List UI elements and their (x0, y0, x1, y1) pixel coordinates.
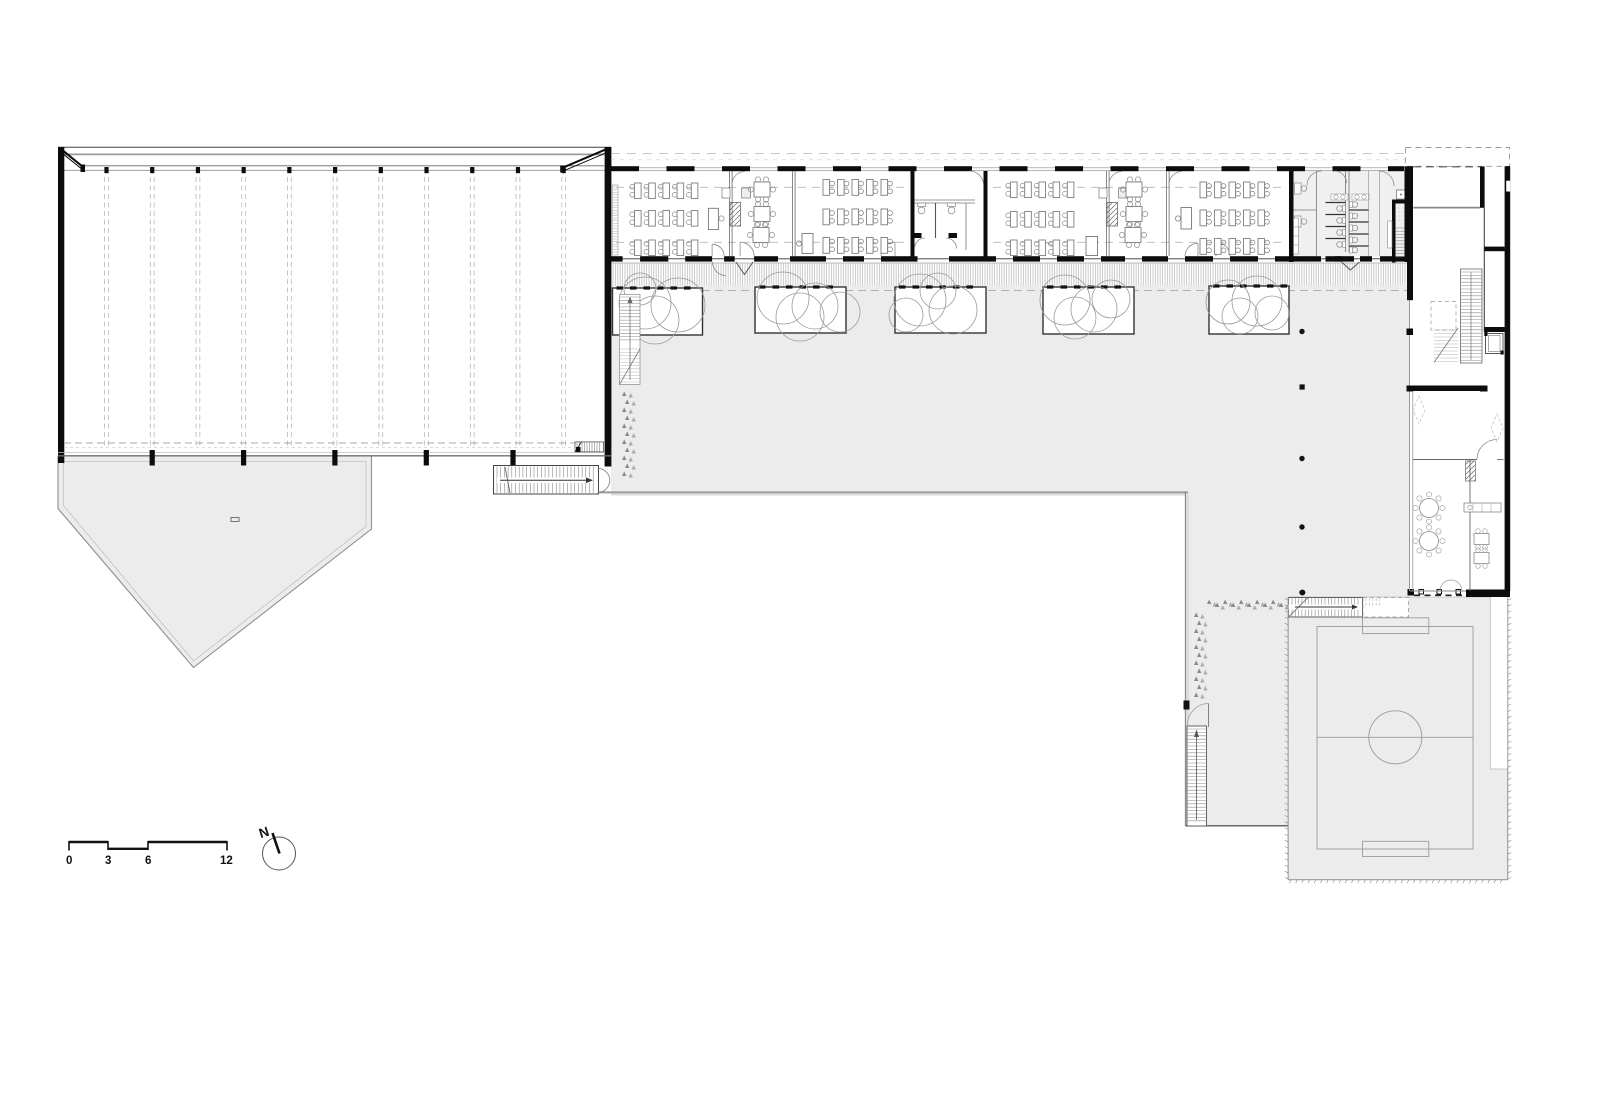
svg-text:6: 6 (145, 855, 151, 867)
svg-text:3: 3 (105, 855, 111, 867)
svg-text:12: 12 (220, 855, 233, 867)
svg-text:0: 0 (66, 855, 72, 867)
